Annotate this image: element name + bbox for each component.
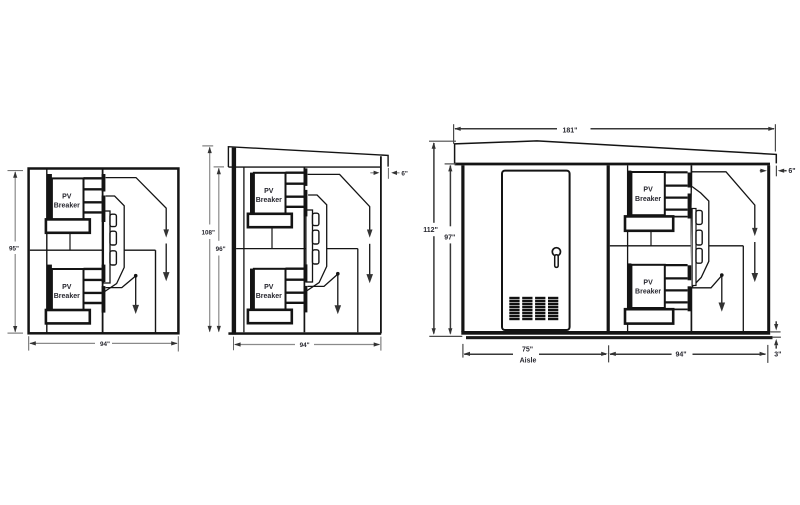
svg-text:PV: PV xyxy=(643,187,653,194)
svg-text:108": 108" xyxy=(201,229,215,236)
svg-text:3": 3" xyxy=(774,351,781,358)
svg-text:94": 94" xyxy=(100,341,110,348)
svg-text:6": 6" xyxy=(788,168,795,175)
svg-text:97": 97" xyxy=(444,235,455,242)
svg-text:96": 96" xyxy=(216,246,226,253)
svg-text:95": 95" xyxy=(9,245,19,252)
svg-text:94": 94" xyxy=(675,352,686,359)
svg-text:112": 112" xyxy=(423,227,438,234)
svg-text:Breaker: Breaker xyxy=(635,196,661,203)
svg-text:75": 75" xyxy=(522,347,533,354)
svg-text:Breaker: Breaker xyxy=(54,203,80,210)
svg-text:6": 6" xyxy=(401,170,408,177)
svg-text:PV: PV xyxy=(62,194,72,201)
svg-text:94": 94" xyxy=(300,342,310,349)
svg-text:181": 181" xyxy=(563,127,578,134)
svg-text:Aisle: Aisle xyxy=(520,358,537,365)
